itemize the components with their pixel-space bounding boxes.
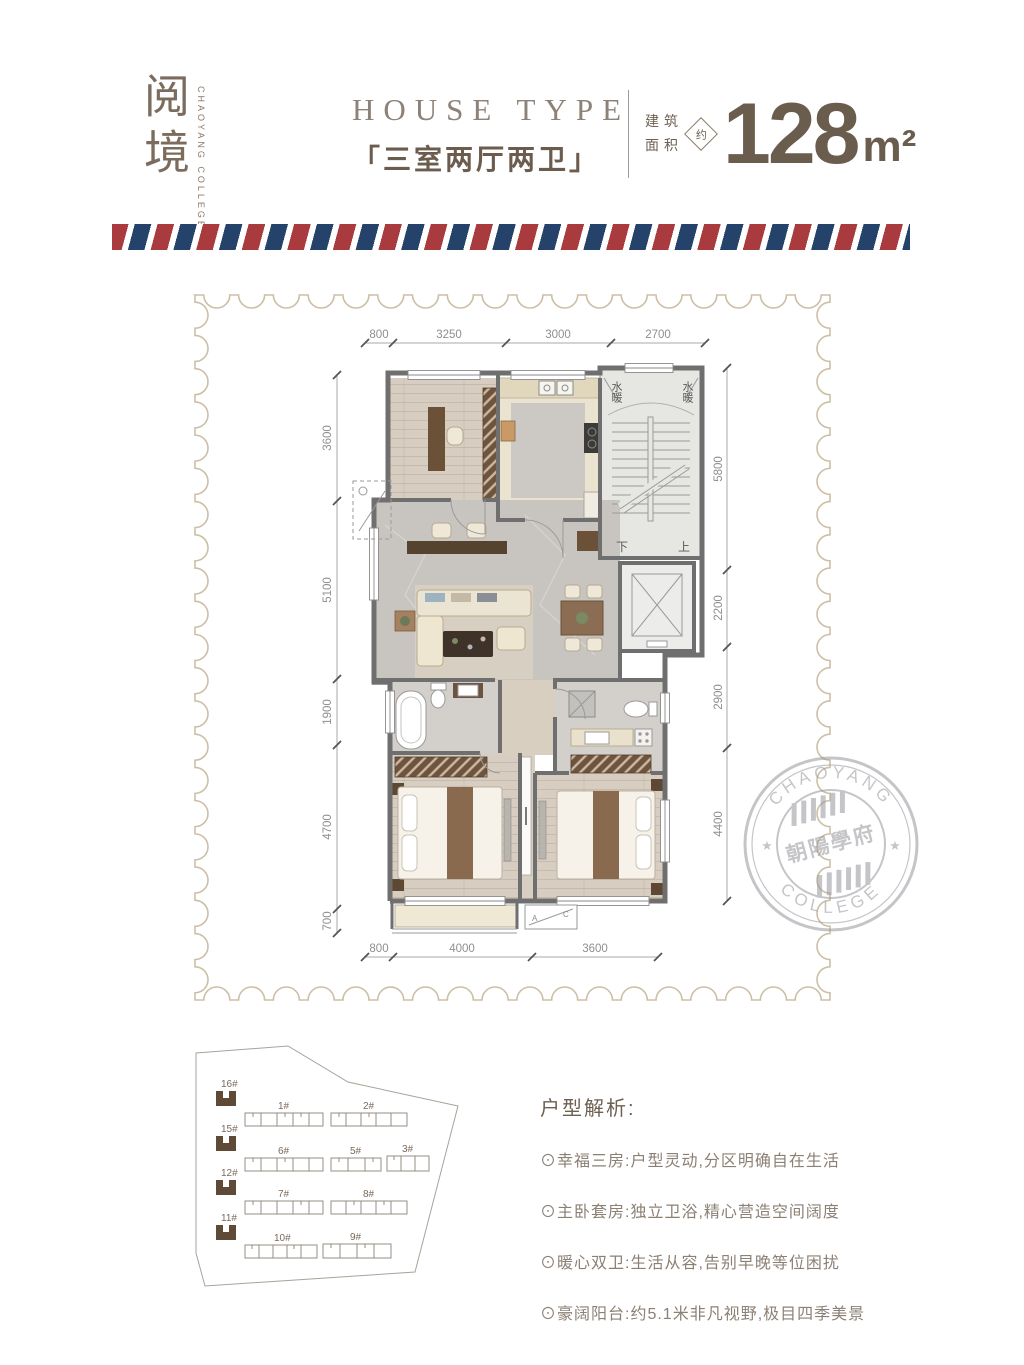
- dining-chair-3: [565, 638, 580, 651]
- master-vanity-sink: [585, 732, 609, 744]
- ac-label-a: A: [532, 914, 538, 923]
- area-unit: m²: [863, 122, 917, 172]
- dim-bottom-3600: 3600: [582, 943, 608, 955]
- master-nightstand-1: [651, 779, 663, 791]
- dim-top-800: 800: [369, 329, 388, 341]
- building-label-3: 3#: [402, 1144, 414, 1155]
- bedroom2-nightstand-2: [392, 879, 404, 891]
- master-bed-runner: [593, 791, 619, 879]
- building-label-1: 1#: [278, 1101, 290, 1112]
- dining-chair-2: [587, 585, 602, 598]
- bedroom2-pillow-2: [402, 835, 417, 871]
- building-label-16: 16#: [221, 1079, 238, 1090]
- building-label-8: 8#: [363, 1189, 375, 1200]
- stamp-star-right: ★: [889, 838, 901, 853]
- circular-seal-stamp: CHAOYANG COLLEGE ★ ★ 朝陽學府: [740, 753, 922, 935]
- floorplan-stamp-frame: 水暖 水暖 下 上 A C 800 3250 3000 2700 3600 51…: [195, 295, 830, 1000]
- analysis-title: 户型解析:: [540, 1092, 920, 1121]
- dim-top-2700: 2700: [645, 329, 671, 341]
- building-label-12: 12#: [221, 1168, 238, 1179]
- dim-right-2900: 2900: [713, 684, 725, 710]
- armchair: [497, 627, 525, 650]
- dim-right-2200: 2200: [713, 595, 725, 621]
- analysis-bullet-1: ⊙幸福三房:户型灵动,分区明确自在生活: [540, 1147, 920, 1171]
- brand-logo-subtext: CHAOYANG COLLEGE: [196, 86, 206, 230]
- airmail-stripe-band: [112, 224, 910, 250]
- floorplan-poster-page: 阅境 CHAOYANG COLLEGE HOUSE TYPE 「三室两厅两卫」 …: [0, 0, 1024, 1365]
- area-label: 建筑 面积: [645, 110, 683, 158]
- dim-left-4700: 4700: [322, 814, 334, 840]
- dim-top-3000: 3000: [545, 329, 571, 341]
- building-label-10: 10#: [274, 1233, 291, 1244]
- toilet: [431, 690, 445, 708]
- building-label-11: 11#: [221, 1213, 237, 1224]
- master-pillow-2: [636, 835, 651, 869]
- analysis-bullet-2: ⊙主卧套房:独立卫浴,精心营造空间阔度: [540, 1198, 920, 1222]
- master-wardrobe: [571, 755, 651, 773]
- building-label-5: 5#: [350, 1146, 362, 1157]
- tv-console: [407, 541, 507, 554]
- area-label-line2: 面积: [645, 134, 683, 158]
- stamp-star-left: ★: [761, 838, 773, 853]
- analysis-bullet-4: ⊙豪阔阳台:约5.1米非凡视野,极目四季美景: [540, 1300, 920, 1324]
- water-heating-right-label: 水暖: [681, 381, 694, 404]
- house-type-en-title: HOUSE TYPE: [352, 92, 630, 128]
- brand-logo: 阅境 CHAOYANG COLLEGE: [140, 72, 206, 230]
- study-desk: [428, 407, 445, 471]
- dining-chair-4: [587, 638, 602, 651]
- master-nightstand-2: [651, 883, 663, 895]
- bedroom2-wardrobe: [395, 757, 487, 777]
- coffee-table: [443, 631, 493, 657]
- stairs-down-label: 下: [616, 540, 628, 554]
- kitchen-sink-2: [557, 381, 573, 395]
- dim-right-5800: 5800: [713, 456, 725, 482]
- hallway-floor: [500, 680, 555, 755]
- approx-badge: 约: [684, 117, 718, 151]
- bedroom2-pillow-1: [402, 795, 417, 831]
- kitchen-cart: [501, 421, 515, 441]
- dim-bottom-800: 800: [369, 943, 388, 955]
- dim-top-3250: 3250: [436, 329, 462, 341]
- elevator: [620, 563, 694, 651]
- building-label-2: 2#: [363, 1101, 375, 1112]
- master-pillow-1: [636, 797, 651, 831]
- kitchen-sink-1: [539, 381, 555, 395]
- stairs-up-label: 上: [678, 540, 690, 554]
- dining-chair-1: [565, 585, 580, 598]
- approx-badge-text: 约: [696, 126, 707, 142]
- dim-left-3600: 3600: [322, 425, 334, 451]
- building-label-7: 7#: [278, 1189, 290, 1200]
- dim-left-5100: 5100: [322, 577, 334, 603]
- toilet-tank: [431, 683, 446, 690]
- master-toilet-tank: [649, 702, 657, 716]
- master-dresser: [539, 801, 546, 859]
- dim-left-700: 700: [322, 911, 334, 930]
- bedroom2-dresser: [504, 799, 511, 861]
- brand-logo-text: 阅境: [140, 72, 186, 230]
- stamp-center-text: 朝陽學府: [783, 821, 878, 868]
- analysis-section: 户型解析: ⊙幸福三房:户型灵动,分区明确自在生活 ⊙主卧套房:独立卫浴,精心营…: [540, 1092, 920, 1351]
- vertical-divider: [628, 90, 629, 178]
- balcony-floor: [395, 905, 517, 927]
- dim-bottom-4000: 4000: [449, 943, 475, 955]
- stool-1: [432, 523, 451, 538]
- kitchen-cabinet: [577, 531, 599, 551]
- bedroom2-bed-runner: [447, 787, 473, 879]
- area-label-line1: 建筑: [645, 110, 683, 134]
- analysis-bullet-3: ⊙暖心双卫:生活从容,告别早晚等位困扰: [540, 1249, 920, 1273]
- study-chair: [447, 427, 463, 445]
- water-heating-left-label: 水暖: [610, 381, 623, 404]
- building-label-15: 15#: [221, 1124, 238, 1135]
- house-type-cn-title: 「三室两厅两卫」: [352, 138, 630, 178]
- master-toilet: [624, 701, 648, 717]
- sofa-chaise: [417, 616, 443, 666]
- building-label-9: 9#: [350, 1232, 362, 1243]
- dim-left-1900: 1900: [322, 699, 334, 725]
- vanity-sink: [458, 685, 478, 696]
- ac-label-c: C: [563, 910, 569, 919]
- area-value: 128: [723, 91, 858, 177]
- kitchen-fridge: [584, 492, 600, 518]
- dim-right-4400: 4400: [713, 811, 725, 837]
- area-block: 建筑 面积 约 128 m²: [628, 84, 916, 184]
- title-block: HOUSE TYPE 「三室两厅两卫」: [352, 92, 630, 178]
- washer: [635, 729, 652, 746]
- siteplan: 16# 15# 12# 11# 1# 2# 6# 5#: [185, 1038, 475, 1296]
- building-label-6: 6#: [278, 1146, 290, 1157]
- study-wardrobe: [483, 388, 497, 500]
